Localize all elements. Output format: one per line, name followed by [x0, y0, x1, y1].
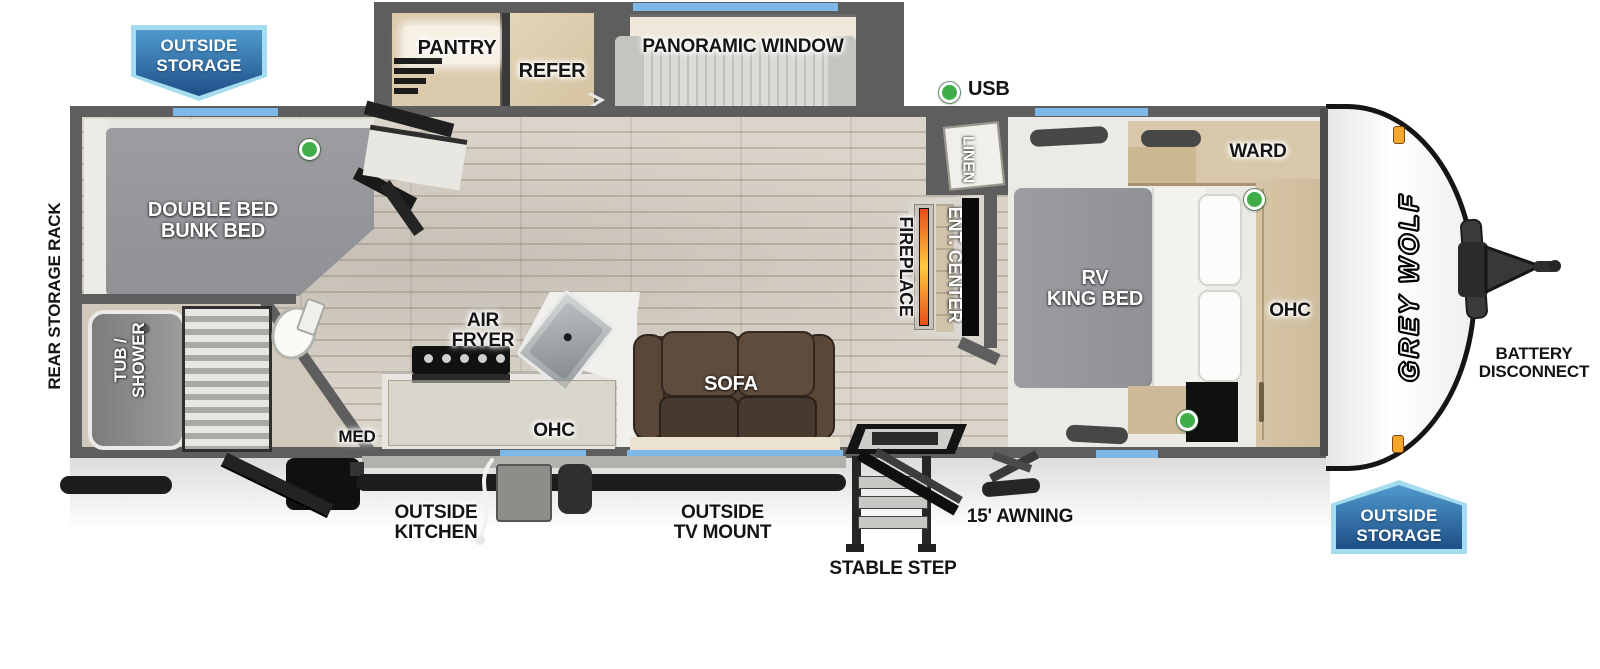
marker-light-icon	[1392, 435, 1404, 453]
rv-floorplan: PANTRY REFER PANORAMIC WINDOW DINETTE DO…	[0, 0, 1600, 669]
air-fryer-label: AIRFRYER	[440, 311, 526, 352]
stable-step-label: STABLE STEP	[818, 559, 968, 579]
banner-text: OUTSIDESTORAGE	[131, 36, 267, 76]
cooktop-knobs	[424, 354, 433, 363]
tub-shower-label: TUB /SHOWER	[112, 302, 148, 418]
usb-label: USB	[968, 79, 1012, 100]
kitchen-ohc-label: OHC	[519, 421, 589, 441]
outside-storage-banner-top: OUTSIDESTORAGE	[131, 25, 267, 101]
awning-roller-bar	[356, 474, 846, 491]
pantry-steps-icon	[394, 58, 444, 102]
sofa-label: SOFA	[686, 374, 776, 395]
bedroom-wall-upper	[984, 193, 997, 348]
stable-step-foot	[846, 544, 864, 552]
outside-kitchen-case	[558, 464, 592, 514]
stable-step-tread	[858, 496, 928, 509]
bedroom-ohc-label: OHC	[1255, 301, 1325, 321]
fireplace-flame-strip	[919, 208, 929, 326]
refer-label: REFER	[510, 61, 594, 82]
outside-kitchen-label: OUTSIDEKITCHEN	[366, 503, 506, 544]
window-valance	[1141, 130, 1201, 147]
battery-disconnect-label: BATTERYDISCONNECT	[1454, 345, 1600, 381]
led-indicator-dot	[299, 139, 320, 160]
entry-door-mat-center	[872, 432, 938, 445]
battery-disconnect-handle	[1456, 212, 1561, 327]
shower-door	[182, 306, 272, 452]
stable-step-foot	[918, 544, 936, 552]
window-bedroom-top	[1035, 108, 1148, 116]
banner-text: OUTSIDESTORAGE	[1331, 506, 1467, 546]
stable-step-tread	[858, 516, 928, 529]
ward-lower-cabinet	[1128, 147, 1196, 183]
pillow	[1198, 290, 1242, 382]
bunk-label: DOUBLE BEDBUNK BED	[118, 200, 308, 243]
led-indicator-dot	[1177, 410, 1198, 431]
window-bunk-top	[173, 108, 278, 116]
linen-label: LINEN	[959, 126, 976, 194]
window-bedroom-bottom	[1096, 450, 1158, 458]
pantry-refer-divider	[502, 13, 510, 112]
cap-seam	[1320, 108, 1328, 456]
king-bed-label: RVKING BED	[1040, 268, 1150, 311]
window-slideout	[633, 3, 838, 11]
panoramic-window-label: PANORAMIC WINDOW	[640, 37, 846, 57]
fireplace-label: FIREPLACE	[896, 209, 915, 324]
awning-label: 15' AWNING	[945, 507, 1095, 527]
bunk-shelf	[84, 119, 108, 299]
belt-rail	[362, 456, 846, 468]
outside-storage-banner-bottom: OUTSIDESTORAGE	[1331, 480, 1467, 554]
rear-storage-rack-label: REAR STORAGE RACK	[46, 196, 64, 396]
ent-center-label: ENT. CENTER	[945, 196, 964, 333]
med-cabinet-label: MED	[327, 428, 387, 446]
bed-nightstand	[1128, 386, 1186, 434]
led-indicator-dot	[1244, 189, 1265, 210]
ward-label: WARD	[1218, 142, 1298, 162]
pantry-label: PANTRY	[409, 38, 505, 59]
outside-tv-mount-label: OUTSIDETV MOUNT	[640, 503, 805, 544]
marker-light-icon	[1393, 126, 1405, 144]
pillow	[1198, 194, 1242, 286]
bedroom-ohc-handle	[1259, 382, 1264, 422]
bunk-headboard-strip	[108, 119, 374, 129]
rear-bumper-bar	[60, 476, 172, 494]
window-valance	[1066, 424, 1129, 444]
brand-logo: GREY WOLF	[1394, 157, 1426, 417]
usb-indicator-dot	[939, 82, 960, 103]
